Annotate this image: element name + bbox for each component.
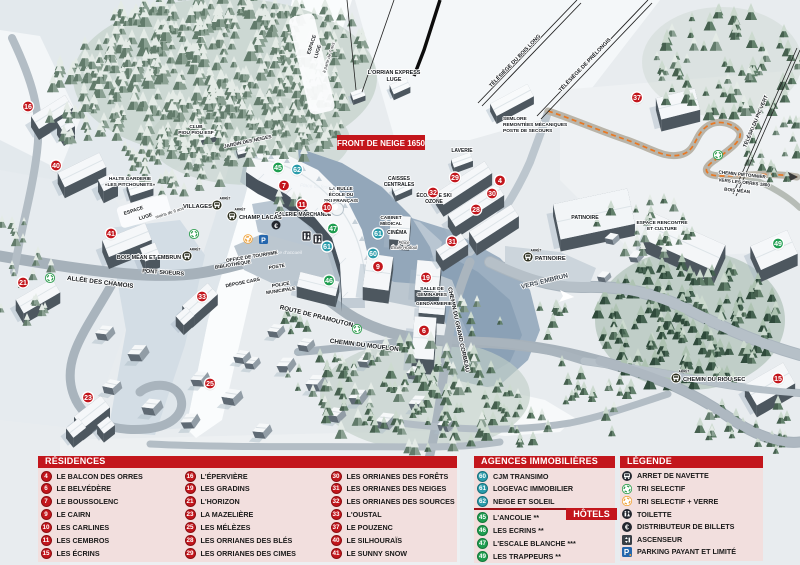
svg-text:P: P [624,548,630,557]
svg-text:ARRÊT: ARRÊT [679,369,690,374]
svg-text:POSTE DE SECOURS: POSTE DE SECOURS [503,128,553,134]
svg-text:L'ORRIAN EXPRESS: L'ORRIAN EXPRESS [368,70,421,76]
svg-text:61: 61 [323,244,331,251]
svg-text:ARRÊT: ARRÊT [220,196,231,201]
svg-text:FRONT DE NEIGE 1650: FRONT DE NEIGE 1650 [337,139,426,148]
svg-text:46: 46 [325,278,333,285]
svg-text:CENTRALES: CENTRALES [384,182,415,188]
svg-text:CLUB: CLUB [189,124,203,130]
svg-text:37: 37 [633,95,641,102]
svg-text:SALLE DE: SALLE DE [420,286,445,292]
svg-text:CHEMIN DU RIOU SEC: CHEMIN DU RIOU SEC [683,377,746,383]
svg-text:ARRÊT: ARRÊT [190,247,201,252]
svg-text:ET CULTURE: ET CULTURE [647,226,678,232]
svg-text:47: 47 [329,226,337,233]
svg-text:60: 60 [369,251,377,258]
svg-text:23: 23 [84,395,92,402]
svg-text:21: 21 [19,280,27,287]
svg-text:61: 61 [374,231,382,238]
svg-text:41: 41 [107,231,115,238]
svg-text:32: 32 [429,190,437,197]
svg-text:PATINOIRE: PATINOIRE [571,215,599,221]
svg-text:62: 62 [293,167,301,174]
svg-text:6: 6 [422,328,426,335]
svg-text:ARRÊT: ARRÊT [531,248,542,253]
svg-text:9: 9 [376,264,380,271]
svg-text:LUGE: LUGE [387,77,402,83]
svg-text:15: 15 [774,376,782,383]
svg-text:11: 11 [298,202,306,209]
svg-text:SEMLORE: SEMLORE [503,116,528,122]
svg-text:BOIS MÉAN ET EMBRUN: BOIS MÉAN ET EMBRUN [117,253,181,261]
svg-text:OZONE: OZONE [425,199,443,205]
svg-text:16: 16 [24,104,32,111]
svg-text:29: 29 [451,175,459,182]
svg-text:31: 31 [448,239,456,246]
svg-text:49: 49 [774,241,782,248]
svg-text:HALTE GARDERIE: HALTE GARDERIE [109,176,152,182]
svg-text:VILLAGES: VILLAGES [183,204,212,210]
svg-text:10: 10 [323,205,331,212]
svg-text:LAVERIE: LAVERIE [451,148,473,154]
svg-text:4: 4 [498,178,502,185]
svg-text:€: € [274,223,278,230]
svg-text:Émile Hodoul: Émile Hodoul [391,245,418,250]
svg-text:45: 45 [274,165,282,172]
svg-text:30: 30 [488,191,496,198]
svg-text:€: € [625,524,629,531]
svg-text:CABINET: CABINET [380,215,401,221]
svg-text:ESPACE RENCONTRE: ESPACE RENCONTRE [636,220,688,226]
svg-text:«LES PITCHOUNETS»: «LES PITCHOUNETS» [105,182,156,188]
svg-text:CINÉMA: CINÉMA [387,228,407,236]
svg-text:19: 19 [422,275,430,282]
svg-text:40: 40 [52,163,60,170]
svg-text:PATINOIRE: PATINOIRE [535,256,566,262]
svg-text:25: 25 [206,381,214,388]
svg-text:CHAMP LACAS: CHAMP LACAS [239,215,282,221]
svg-text:PIOU PIOU ESF: PIOU PIOU ESF [178,130,214,136]
svg-text:ARRÊT: ARRÊT [235,207,246,212]
svg-text:33: 33 [198,294,206,301]
svg-text:7: 7 [282,183,286,190]
svg-text:28: 28 [472,207,480,214]
svg-text:P: P [261,238,266,245]
svg-text:GENDARMERIE: GENDARMERIE [416,301,453,307]
